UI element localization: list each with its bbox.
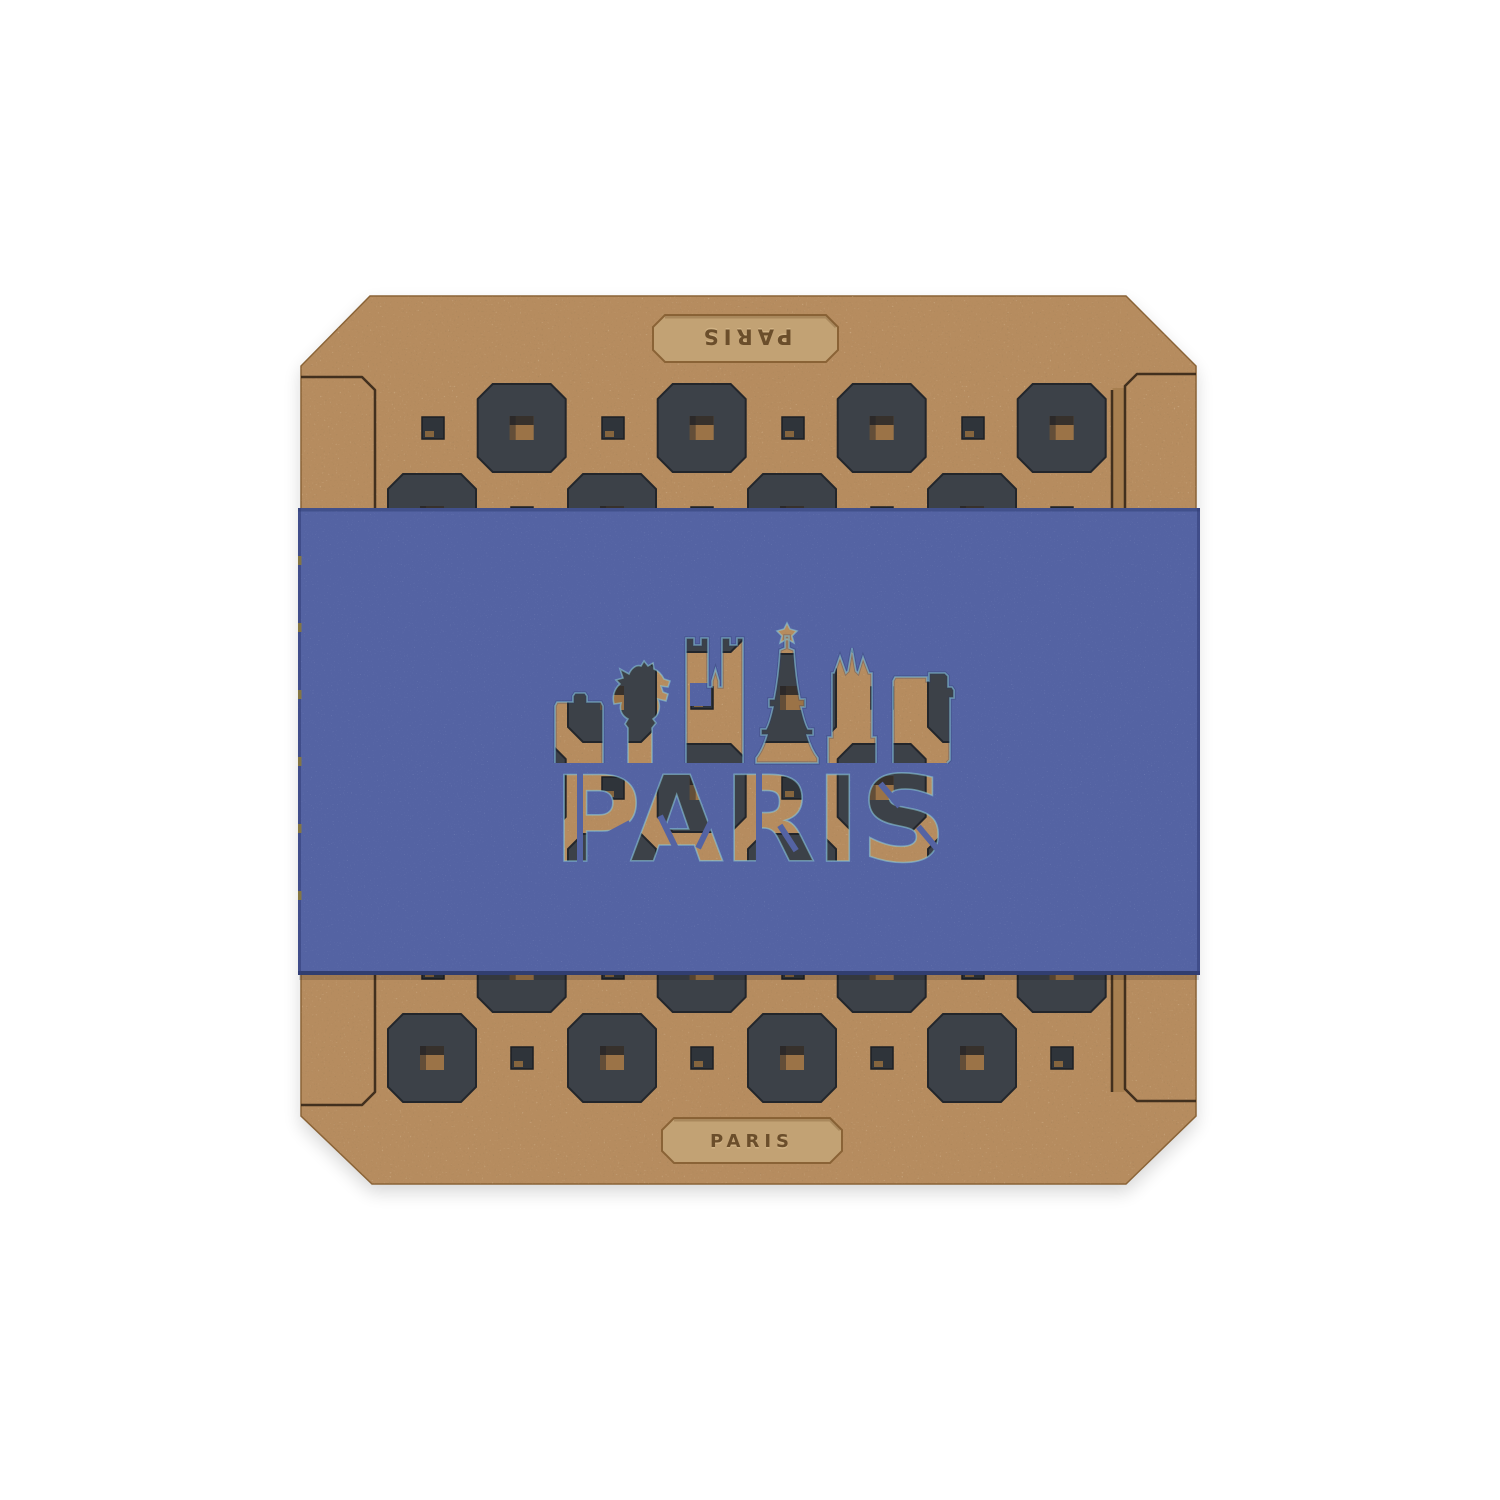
tile-square-wood-sliver [965,431,974,437]
tile-hole-shadow [420,1046,426,1070]
scene-svg: PARIS PARIS PARIS [0,0,1500,1500]
top-engraving: PARIS [699,325,793,349]
tile-square-wood-sliver [694,1061,703,1067]
tile-hole-shadow [690,416,696,440]
tile-square-wood-sliver [605,431,614,437]
tile-hole-shadow [510,416,516,440]
tile-hole-shadow [960,1046,966,1070]
tile-hole-shadow [780,1046,786,1070]
tile-square-wood-sliver [785,431,794,437]
paper-band [298,508,1200,975]
product-photo: PARIS PARIS PARIS [0,0,1500,1500]
bottom-engraving: PARIS [710,1131,794,1152]
bottom-engraving-plate: PARIS PARIS [662,1118,842,1163]
paris-stencil-glint: PARIS [553,752,947,890]
tile-square-wood-sliver [874,1061,883,1067]
top-engraving-plate: PARIS PARIS [653,315,838,362]
tile-square-wood-sliver [425,431,434,437]
tile-square-wood-sliver [514,1061,523,1067]
tile-square-wood-sliver [1054,1061,1063,1067]
band-shadow [299,975,1199,980]
tile-hole-shadow [600,1046,606,1070]
tile-hole-shadow [1050,416,1056,440]
tile-hole-shadow [870,416,876,440]
